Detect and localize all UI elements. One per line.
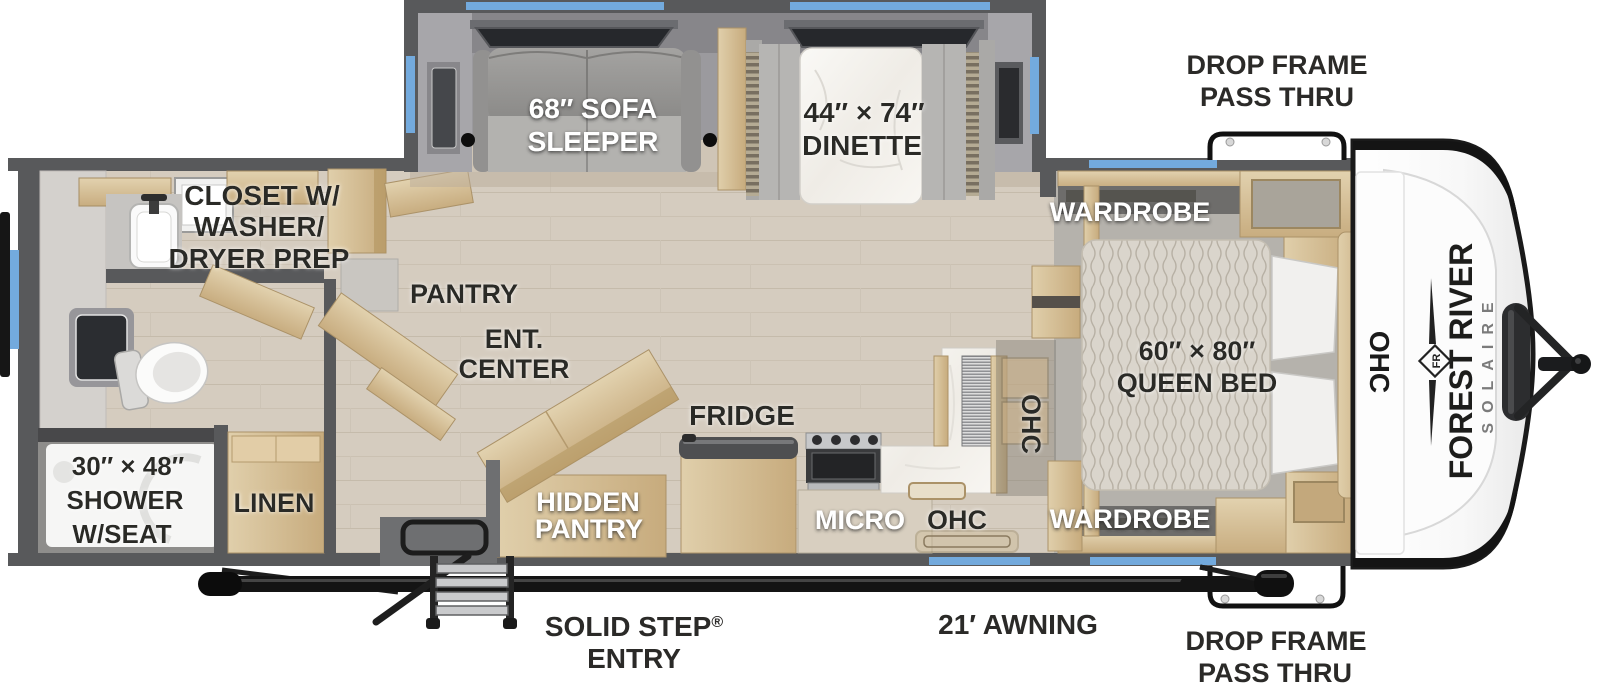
- svg-text:DROP FRAME: DROP FRAME: [1185, 626, 1366, 656]
- svg-text:60″ × 80″: 60″ × 80″: [1139, 336, 1256, 366]
- svg-text:SHOWER: SHOWER: [67, 485, 184, 515]
- svg-text:WARDROBE: WARDROBE: [1050, 197, 1211, 227]
- svg-text:MICRO: MICRO: [815, 505, 905, 535]
- svg-text:DINETTE: DINETTE: [802, 130, 922, 161]
- svg-text:HIDDEN: HIDDEN: [536, 487, 640, 517]
- svg-text:PANTRY: PANTRY: [535, 514, 643, 544]
- svg-text:OHC: OHC: [1364, 331, 1395, 393]
- svg-text:SOLID STEP®: SOLID STEP®: [545, 611, 723, 642]
- svg-text:OHC: OHC: [1016, 394, 1046, 454]
- svg-text:DRYER PREP: DRYER PREP: [168, 243, 349, 274]
- svg-text:CENTER: CENTER: [458, 354, 569, 384]
- svg-text:SLEEPER: SLEEPER: [528, 126, 659, 157]
- svg-text:PASS THRU: PASS THRU: [1200, 82, 1354, 112]
- svg-text:CLOSET W/: CLOSET W/: [184, 180, 340, 211]
- svg-text:21′ AWNING: 21′ AWNING: [938, 609, 1098, 640]
- svg-text:DROP FRAME: DROP FRAME: [1186, 50, 1367, 80]
- svg-text:WARDROBE: WARDROBE: [1050, 504, 1211, 534]
- svg-text:PASS THRU: PASS THRU: [1198, 658, 1352, 688]
- svg-text:ENTRY: ENTRY: [587, 643, 681, 674]
- svg-text:WASHER/: WASHER/: [194, 211, 325, 242]
- svg-text:OHC: OHC: [927, 505, 987, 535]
- svg-text:68″ SOFA: 68″ SOFA: [529, 93, 658, 124]
- svg-text:ENT.: ENT.: [485, 324, 544, 354]
- svg-text:30″ × 48″: 30″ × 48″: [72, 451, 184, 481]
- svg-text:PANTRY: PANTRY: [410, 279, 518, 309]
- svg-text:W/SEAT: W/SEAT: [72, 519, 171, 549]
- svg-text:FRIDGE: FRIDGE: [689, 400, 795, 431]
- svg-text:QUEEN BED: QUEEN BED: [1117, 368, 1278, 398]
- svg-text:LINEN: LINEN: [234, 488, 315, 518]
- svg-text:FR: FR: [1431, 354, 1443, 369]
- svg-text:44″ × 74″: 44″ × 74″: [803, 97, 924, 128]
- svg-text:SOLAIRE: SOLAIRE: [1480, 292, 1497, 433]
- svg-text:FOREST RIVER: FOREST RIVER: [1443, 243, 1479, 479]
